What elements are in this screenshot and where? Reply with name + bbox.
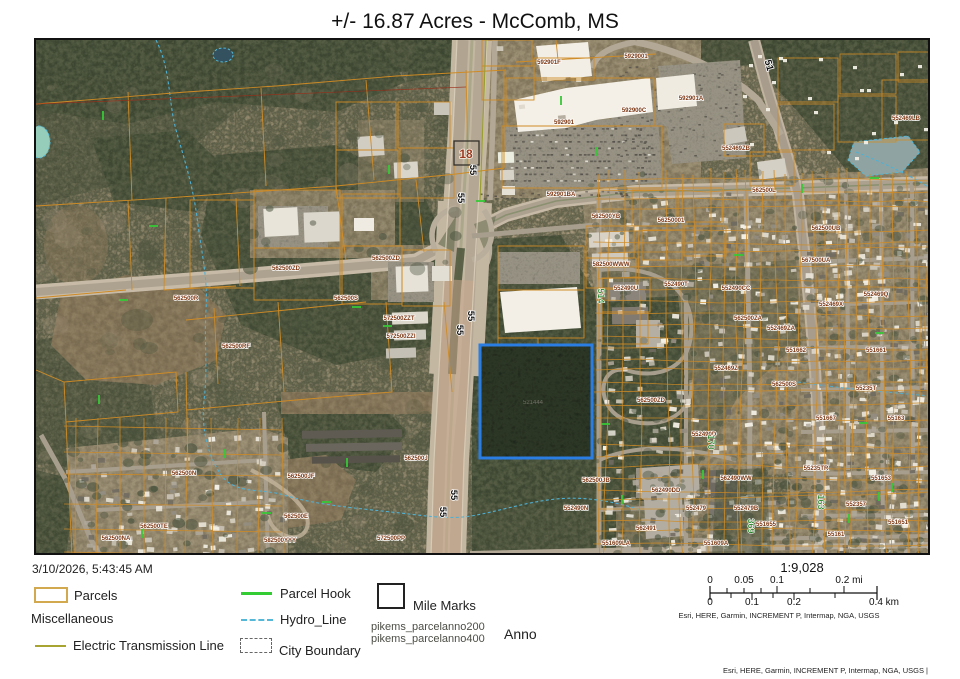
svg-text:551609A: 551609A — [704, 541, 729, 547]
svg-text:562500J: 562500J — [404, 456, 427, 462]
svg-text:55: 55 — [448, 490, 459, 501]
svg-text:18: 18 — [459, 147, 473, 161]
svg-text:552490U: 552490U — [614, 286, 638, 292]
svg-text:582500YYY: 582500YYY — [264, 538, 296, 544]
svg-text:582500WWW: 582500WWW — [592, 262, 629, 268]
svg-text:562500YB: 562500YB — [592, 214, 621, 220]
svg-text:163: 163 — [816, 494, 826, 509]
svg-text:562500JB: 562500JB — [582, 478, 610, 484]
svg-text:562491: 562491 — [636, 526, 657, 532]
svg-text:562500JF: 562500JF — [287, 474, 314, 480]
svg-text:551651: 551651 — [888, 520, 909, 526]
svg-text:572500PP: 572500PP — [377, 536, 405, 542]
svg-text:572500ZZT: 572500ZZT — [383, 316, 414, 322]
svg-text:562500ZD: 562500ZD — [272, 266, 301, 272]
svg-text:562500L: 562500L — [752, 188, 776, 194]
svg-text:562500NA: 562500NA — [102, 536, 131, 542]
svg-text:551653: 551653 — [871, 476, 892, 482]
svg-text:55235T: 55235T — [856, 386, 877, 392]
svg-text:55: 55 — [455, 193, 466, 204]
svg-text:552469Q: 552469Q — [864, 292, 889, 298]
svg-text:562500ZA: 562500ZA — [734, 316, 763, 322]
svg-text:55: 55 — [465, 311, 476, 322]
svg-text:592901BA: 592901BA — [547, 192, 576, 198]
svg-text:592900C: 592900C — [622, 108, 647, 114]
svg-text:55163: 55163 — [888, 416, 905, 422]
svg-text:562490DD: 562490DD — [652, 488, 681, 494]
svg-text:562500N: 562500N — [172, 471, 196, 477]
svg-text:514: 514 — [596, 288, 606, 303]
svg-text:552357: 552357 — [846, 502, 867, 508]
svg-text:562490WW: 562490WW — [720, 476, 752, 482]
svg-text:5929001: 5929001 — [624, 54, 648, 60]
svg-text:552469ZB: 552469ZB — [722, 146, 751, 152]
svg-text:551609LA: 551609LA — [602, 541, 631, 547]
svg-text:592901A: 592901A — [679, 96, 704, 102]
svg-text:55: 55 — [437, 507, 448, 518]
svg-text:521444: 521444 — [523, 400, 544, 406]
svg-text:55235TR: 55235TR — [804, 466, 829, 472]
svg-text:56250001: 56250001 — [658, 218, 685, 224]
svg-text:551661: 551661 — [866, 348, 887, 354]
svg-text:552469X: 552469X — [819, 302, 843, 308]
svg-text:552479: 552479 — [686, 506, 707, 512]
svg-text:562500TE: 562500TE — [140, 524, 168, 530]
svg-text:572500ZZI: 572500ZZI — [386, 334, 415, 340]
svg-text:55: 55 — [454, 325, 465, 336]
svg-text:562500ZD: 562500ZD — [372, 256, 401, 262]
svg-text:552469ZA: 552469ZA — [767, 326, 796, 332]
svg-text:551667: 551667 — [816, 416, 837, 422]
svg-text:369: 369 — [746, 518, 756, 533]
svg-text:562500S: 562500S — [334, 296, 358, 302]
svg-text:170: 170 — [706, 434, 716, 449]
svg-text:592901F: 592901F — [537, 60, 561, 66]
svg-text:55: 55 — [467, 165, 478, 176]
svg-text:562500RF: 562500RF — [222, 344, 250, 350]
svg-text:552469Z: 552469Z — [714, 366, 738, 372]
svg-text:592901: 592901 — [554, 120, 575, 126]
svg-text:551655: 551655 — [756, 522, 777, 528]
svg-text:562500UB: 562500UB — [812, 226, 841, 232]
svg-text:562500ZD: 562500ZD — [637, 398, 666, 404]
svg-text:55161: 55161 — [828, 532, 845, 538]
svg-text:567500UA: 567500UA — [802, 258, 831, 264]
svg-text:552490N: 552490N — [564, 506, 588, 512]
svg-text:552479B: 552479B — [734, 506, 759, 512]
svg-text:552469LB: 552469LB — [892, 116, 921, 122]
svg-text:562500S: 562500S — [772, 382, 796, 388]
svg-text:551662: 551662 — [786, 348, 807, 354]
svg-text:552490T: 552490T — [664, 282, 688, 288]
svg-text:562500E: 562500E — [284, 514, 308, 520]
svg-text:562500R: 562500R — [174, 296, 199, 302]
svg-text:552490CC: 552490CC — [722, 286, 751, 292]
